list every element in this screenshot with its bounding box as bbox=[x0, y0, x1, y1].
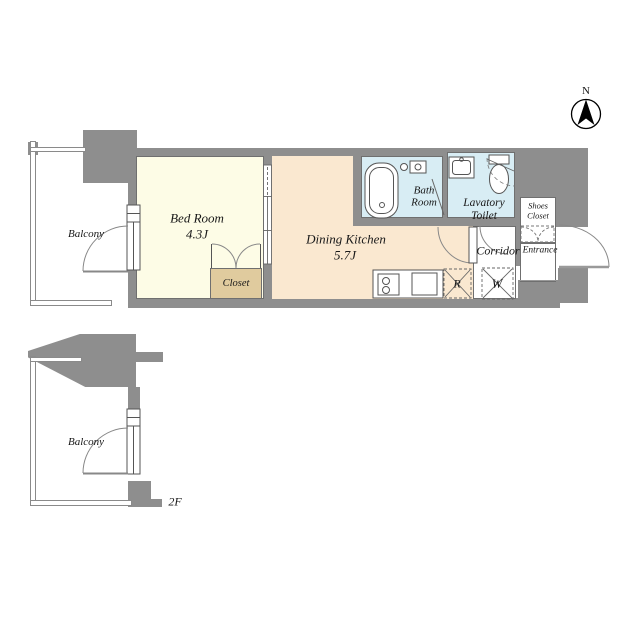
floor-tag: 2F bbox=[168, 495, 181, 508]
balcony2f-rail-bottom bbox=[30, 500, 132, 506]
balcony-rail-bottom bbox=[30, 300, 112, 306]
bathroom-label: Bath Room bbox=[411, 185, 437, 210]
bathroom-label-line1: Bath bbox=[411, 185, 437, 197]
corridor-label: Corridor bbox=[476, 244, 519, 257]
lavatory-label-line1: Lavatory bbox=[463, 197, 505, 210]
refrigerator-label: R bbox=[453, 277, 460, 290]
bedroom-size: 4.3J bbox=[186, 228, 208, 243]
lavatory-label: Lavatory Toilet bbox=[463, 197, 505, 223]
north-compass-icon bbox=[572, 100, 601, 129]
balcony-label: Balcony bbox=[68, 228, 104, 240]
entrance-label: Entrance bbox=[523, 246, 558, 257]
lavatory-label-line2: Toilet bbox=[463, 210, 505, 223]
closet-label: Closet bbox=[223, 278, 250, 290]
shoes-closet-label-line2: Closet bbox=[527, 211, 549, 221]
floor-plan: N Balcony Bed Room 4.3J Dining Kitchen 5… bbox=[0, 0, 640, 640]
dining-kitchen-size: 5.7J bbox=[334, 249, 356, 264]
balcony-rail-left bbox=[30, 141, 36, 306]
bedroom-label: Bed Room bbox=[170, 212, 224, 227]
balcony2f-rail-left bbox=[30, 356, 36, 506]
balcony2f-rail-top bbox=[30, 357, 82, 362]
wall-bottom bbox=[128, 298, 560, 308]
bathroom-label-line2: Room bbox=[411, 197, 437, 209]
balcony-2f-label: Balcony bbox=[68, 436, 104, 448]
wall-2f-bar bbox=[136, 352, 163, 362]
wall-2f-side bbox=[128, 387, 140, 409]
wall-bottom-right bbox=[518, 280, 588, 303]
washer-label: W bbox=[492, 277, 502, 291]
wall-partition-bottom bbox=[263, 264, 272, 298]
balcony-rail-top bbox=[30, 147, 86, 152]
dining-kitchen-label: Dining Kitchen bbox=[306, 233, 386, 248]
fixtures-layer bbox=[0, 0, 640, 640]
compass-label: N bbox=[582, 85, 590, 97]
wall-2f-step2 bbox=[151, 499, 162, 507]
entrance-door-opening bbox=[556, 227, 588, 268]
shoes-closet-label: Shoes Closet bbox=[527, 201, 549, 220]
